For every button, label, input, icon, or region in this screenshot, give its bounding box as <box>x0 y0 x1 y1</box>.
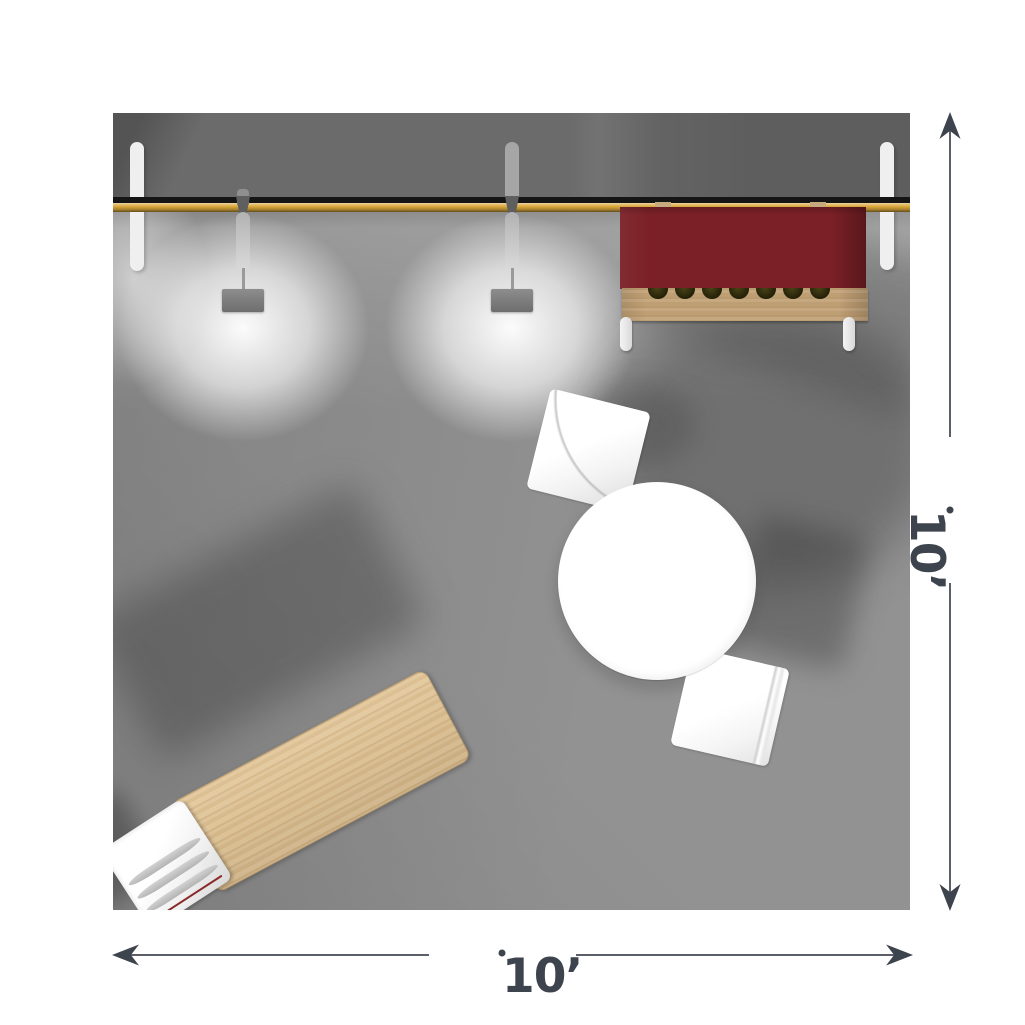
dimension-height-line-bottom <box>949 583 951 906</box>
bottle-hole <box>675 288 695 299</box>
bottle-hole <box>810 288 830 299</box>
dimension-width-line-right <box>576 954 910 956</box>
bottle-hole <box>756 288 776 299</box>
light-2-head <box>491 289 533 312</box>
bottle-hole <box>729 288 749 299</box>
counter-bottle-shelf <box>622 288 868 321</box>
width-dimension-text: 10’ <box>502 953 582 1000</box>
booth-floor-plan: 10’ 10’ <box>0 0 1025 1025</box>
bottle-hole <box>783 288 803 299</box>
zero-center-dot <box>499 950 506 957</box>
counter-leg-right <box>843 317 855 351</box>
zero-center-dot <box>947 507 954 514</box>
light-1-head <box>222 289 264 312</box>
booth-floor <box>113 113 910 910</box>
bottle-hole <box>702 288 722 299</box>
dimension-height-line-top <box>949 117 951 437</box>
light-2-arm <box>505 212 519 270</box>
counter-leg-left <box>620 317 632 351</box>
dimension-width-line-left <box>117 954 429 956</box>
bottle-hole <box>648 288 668 299</box>
height-dimension-text: 10’ <box>903 510 950 590</box>
light-1-arm <box>236 212 250 270</box>
round-meeting-table <box>558 482 756 680</box>
counter-top <box>620 207 866 289</box>
